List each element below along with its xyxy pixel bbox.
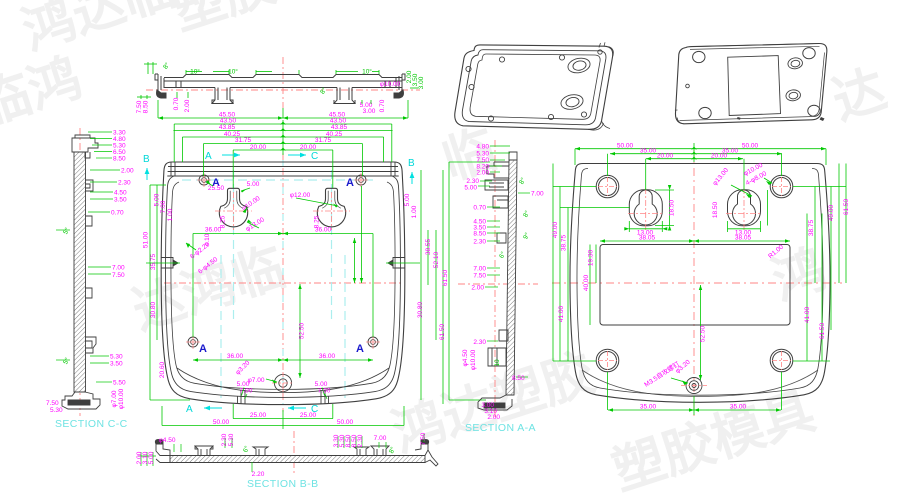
svg-text:50.00: 50.00 [742,142,759,149]
svg-text:20.00: 20.00 [250,144,267,151]
svg-text:2.30: 2.30 [357,434,364,447]
svg-text:3.50: 3.50 [114,197,127,204]
svg-text:35.00: 35.00 [640,404,657,411]
svg-text:φ7.00: φ7.00 [248,377,265,384]
svg-text:50.00: 50.00 [617,142,634,149]
svg-text:7.00: 7.00 [374,435,387,442]
svg-text:10°: 10° [362,68,372,76]
svg-text:10°: 10° [228,68,238,76]
svg-text:61.50: 61.50 [843,198,850,215]
svg-text:0.70: 0.70 [473,205,486,212]
svg-text:5.50: 5.50 [113,380,126,387]
svg-text:A: A [346,177,354,189]
svg-text:C: C [311,404,318,415]
svg-text:φ4.50: φ4.50 [159,437,176,444]
svg-text:10: 10 [494,359,501,367]
svg-text:8.50: 8.50 [113,156,126,163]
svg-text:20.00: 20.00 [711,153,728,160]
svg-text:18.50: 18.50 [712,201,719,218]
svg-text:8.50: 8.50 [512,375,525,382]
svg-text:51.00: 51.00 [143,231,150,248]
svg-text:SECTION B-B: SECTION B-B [247,478,319,490]
svg-text:52.50: 52.50 [299,322,306,339]
svg-text:φ4.50: φ4.50 [462,349,469,366]
svg-text:7.50: 7.50 [46,400,59,407]
svg-text:3.50: 3.50 [110,361,123,368]
svg-text:0.70: 0.70 [111,210,124,217]
svg-text:5.00: 5.00 [464,185,477,192]
svg-text:2.00: 2.00 [184,99,191,112]
svg-text:4.80: 4.80 [476,144,489,151]
svg-text:35.00: 35.00 [730,404,747,411]
svg-text:2.30: 2.30 [473,339,486,346]
svg-text:25.00: 25.00 [250,412,267,419]
svg-text:5.00: 5.00 [404,193,411,206]
svg-text:38.05: 38.05 [639,235,656,242]
svg-text:A: A [199,343,207,355]
svg-text:8.25: 8.25 [314,215,321,228]
svg-text:41.00: 41.00 [804,306,811,323]
svg-text:1.00: 1.00 [411,205,418,218]
svg-text:7.00: 7.00 [112,265,125,272]
svg-text:φ7.00: φ7.00 [111,390,118,407]
svg-text:7.00: 7.00 [473,266,486,273]
svg-text:5.00: 5.00 [148,451,155,464]
svg-text:40.00: 40.00 [583,274,590,291]
svg-text:2.20: 2.20 [252,471,265,478]
svg-text:50.00: 50.00 [213,419,230,426]
svg-text:10°: 10° [190,68,200,76]
svg-text:25.50: 25.50 [208,185,225,192]
svg-text:7.50: 7.50 [473,273,486,280]
svg-text:φ12.00: φ12.00 [290,192,311,199]
svg-text:36.00: 36.00 [319,353,336,360]
svg-text:1.00: 1.00 [167,208,174,221]
svg-text:35.75: 35.75 [150,253,157,270]
svg-text:C: C [311,151,318,162]
svg-text:61.50: 61.50 [819,322,826,339]
svg-text:36.00: 36.00 [227,353,244,360]
svg-text:2.30: 2.30 [118,180,131,187]
svg-text:8.50: 8.50 [473,231,486,238]
svg-text:7.50: 7.50 [112,272,125,279]
svg-text:49.00: 49.00 [828,204,835,221]
svg-text:35.00: 35.00 [640,148,657,155]
svg-text:5.30: 5.30 [50,407,63,414]
svg-text:7.00: 7.00 [531,191,544,198]
svg-text:50.00: 50.00 [337,419,354,426]
svg-text:52.50: 52.50 [700,325,707,342]
svg-text:A: A [205,151,212,162]
svg-text:38.75: 38.75 [561,234,568,251]
svg-text:20.00: 20.00 [657,153,674,160]
svg-text:SECTION C-C: SECTION C-C [55,418,128,430]
svg-text:4.50: 4.50 [114,190,127,197]
svg-text:38.55: 38.55 [425,238,432,255]
svg-text:SECTION A-A: SECTION A-A [465,422,536,434]
svg-text:20.60: 20.60 [159,361,166,378]
svg-text:49.00: 49.00 [552,221,559,238]
svg-text:A: A [356,343,364,355]
svg-text:A: A [186,404,193,415]
svg-text:7.00: 7.00 [240,388,253,395]
svg-text:5.00: 5.00 [247,181,260,188]
svg-text:30.80: 30.80 [417,301,424,318]
svg-text:2.00: 2.00 [121,168,134,175]
svg-text:18.50: 18.50 [669,199,676,216]
svg-text:61.50: 61.50 [439,323,446,340]
svg-text:3.00: 3.00 [418,76,425,89]
svg-text:7.50: 7.50 [420,432,427,445]
svg-text:0.70: 0.70 [379,99,386,112]
svg-text:B: B [143,154,150,165]
svg-text:30.80: 30.80 [150,301,157,318]
svg-text:8.50: 8.50 [143,100,150,113]
svg-text:41.00: 41.00 [558,305,565,322]
svg-text:0.70: 0.70 [173,97,180,110]
svg-text:19.30: 19.30 [588,249,595,266]
svg-text:5.30: 5.30 [110,354,123,361]
svg-text:2.00: 2.00 [476,170,489,177]
svg-text:3.00: 3.00 [363,108,376,115]
svg-text:8.25: 8.25 [220,215,227,228]
svg-text:31.75: 31.75 [315,137,332,144]
svg-text:52.10: 52.10 [433,251,440,268]
svg-text:B: B [408,158,415,169]
svg-text:2.00: 2.00 [471,285,484,292]
svg-text:20.00: 20.00 [300,144,317,151]
svg-text:2.30: 2.30 [473,239,486,246]
svg-text:7.00: 7.00 [160,200,167,213]
svg-text:φ10.00: φ10.00 [118,388,125,409]
svg-text:φ10.00: φ10.00 [380,81,401,88]
svg-text:38.05: 38.05 [735,235,752,242]
svg-text:2.00: 2.00 [487,414,500,421]
svg-text:2.30: 2.30 [221,433,228,446]
svg-text:38.75: 38.75 [808,219,815,236]
svg-text:61.50: 61.50 [442,269,449,286]
svg-text:φ10.00: φ10.00 [470,349,477,370]
svg-text:5.30: 5.30 [228,433,235,446]
